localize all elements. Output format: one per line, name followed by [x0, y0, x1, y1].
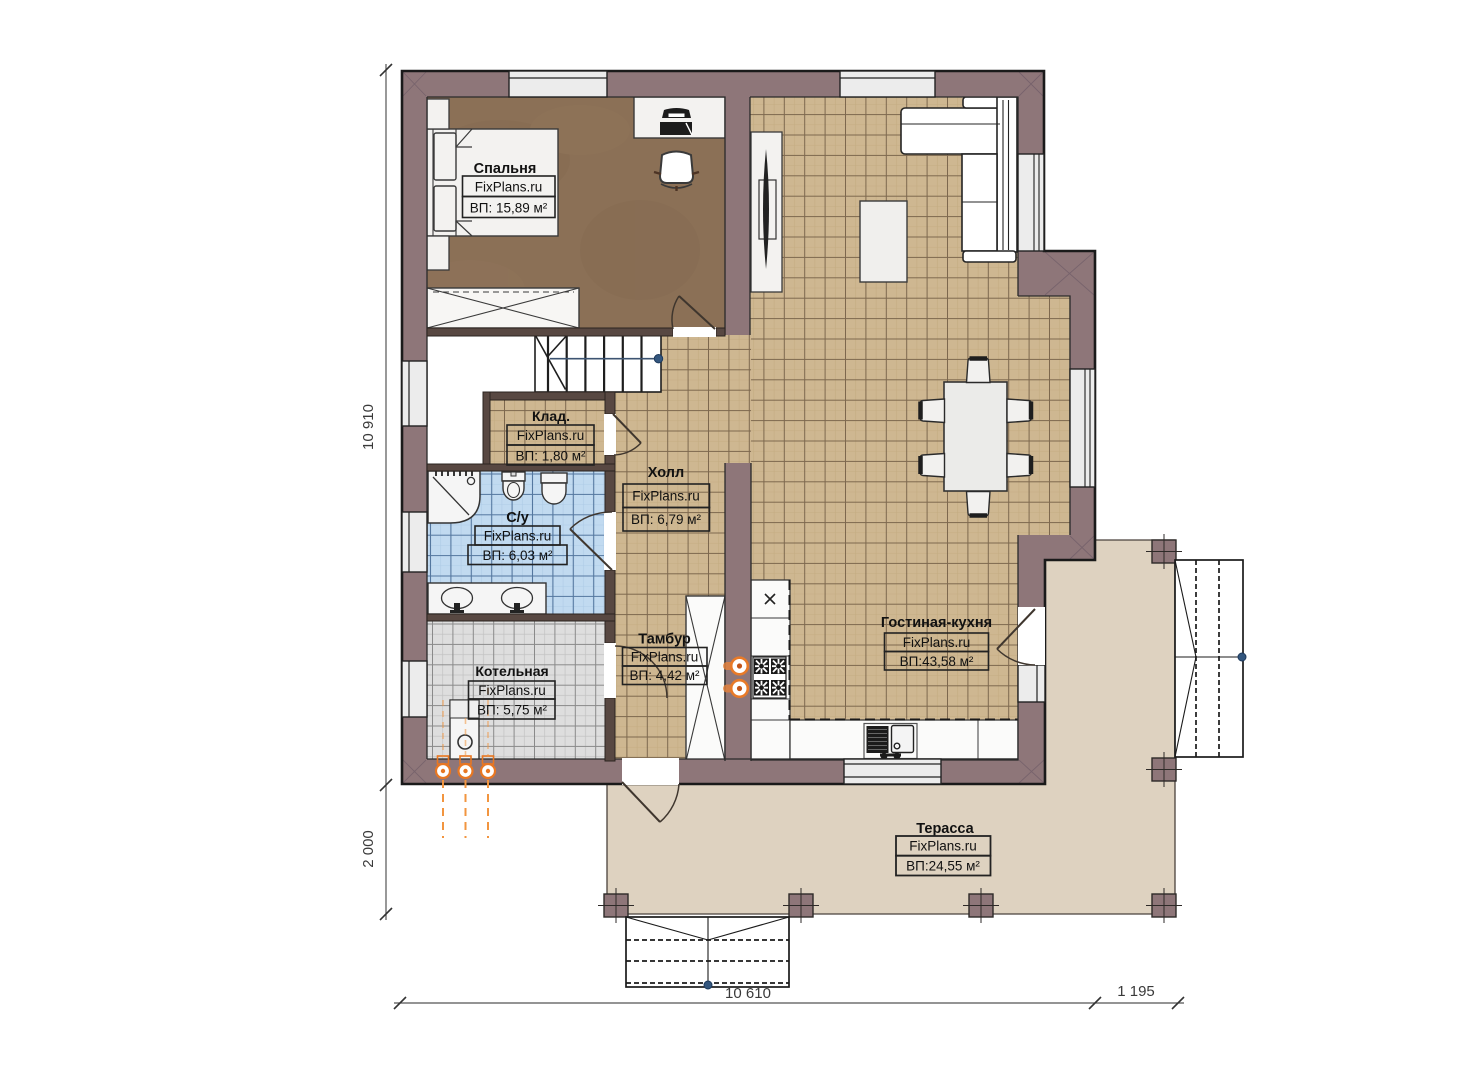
- svg-text:FixPlans.ru: FixPlans.ru: [632, 489, 700, 504]
- svg-text:Холл: Холл: [648, 465, 684, 481]
- svg-text:FixPlans.ru: FixPlans.ru: [478, 683, 546, 698]
- svg-text:ВП: 6,79 м²: ВП: 6,79 м²: [631, 512, 702, 527]
- svg-text:Гостиная-кухня: Гостиная-кухня: [881, 615, 992, 631]
- svg-text:Котельная: Котельная: [475, 663, 548, 679]
- svg-text:2 000: 2 000: [360, 830, 377, 868]
- svg-text:FixPlans.ru: FixPlans.ru: [475, 180, 543, 195]
- svg-text:ВП: 5,75 м²: ВП: 5,75 м²: [477, 703, 548, 718]
- svg-text:FixPlans.ru: FixPlans.ru: [909, 839, 977, 854]
- svg-text:С/у: С/у: [506, 510, 529, 526]
- svg-text:Терасса: Терасса: [916, 821, 974, 837]
- svg-text:Спальня: Спальня: [474, 161, 537, 177]
- svg-text:Тамбур: Тамбур: [638, 632, 691, 648]
- svg-text:FixPlans.ru: FixPlans.ru: [484, 529, 552, 544]
- svg-text:10 910: 10 910: [360, 404, 377, 450]
- svg-text:ВП:24,55 м²: ВП:24,55 м²: [906, 859, 980, 874]
- svg-text:10 610: 10 610: [725, 985, 771, 1002]
- svg-text:ВП:43,58 м²: ВП:43,58 м²: [900, 654, 974, 669]
- svg-text:Клад.: Клад.: [532, 408, 570, 424]
- svg-text:ВП: 1,80 м²: ВП: 1,80 м²: [515, 449, 586, 464]
- svg-text:ВП: 15,89 м²: ВП: 15,89 м²: [470, 201, 548, 216]
- svg-text:ВП: 4,42 м²: ВП: 4,42 м²: [629, 668, 700, 683]
- svg-text:FixPlans.ru: FixPlans.ru: [517, 428, 585, 443]
- svg-text:1 195: 1 195: [1117, 983, 1155, 1000]
- svg-text:FixPlans.ru: FixPlans.ru: [903, 635, 971, 650]
- svg-text:FixPlans.ru: FixPlans.ru: [631, 650, 699, 665]
- svg-text:ВП: 6,03 м²: ВП: 6,03 м²: [482, 548, 553, 563]
